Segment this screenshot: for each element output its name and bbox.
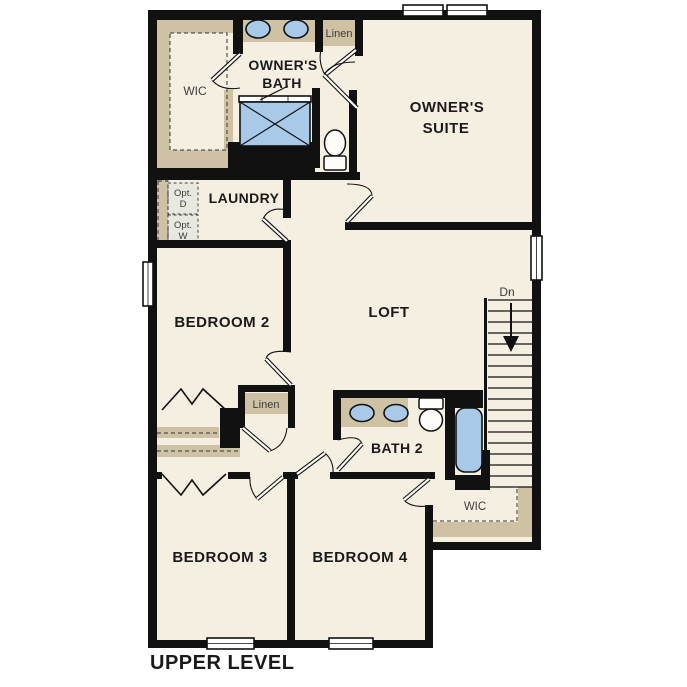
wall-linen-hall-left (238, 385, 245, 428)
floor-plan-page: OWNER'S SUITE OWNER'S BATH WIC LAUNDRY B… (0, 0, 687, 687)
linen-upper-label: Linen (326, 28, 353, 40)
wall-stairs-bottom (455, 475, 490, 490)
wall-linen-right (355, 16, 363, 56)
wall-laundry-right (283, 168, 291, 218)
wall-bath2-top (333, 390, 455, 398)
owners-bath-label-line1: OWNER'S (248, 57, 317, 73)
floor-plan: OWNER'S SUITE OWNER'S BATH WIC LAUNDRY B… (0, 0, 687, 687)
wall-toilet-nook-bottom (312, 172, 360, 180)
laundry-side-shelf (157, 180, 168, 245)
stairs-dn-label: Dn (499, 285, 514, 299)
wall-wic-lower-bottom (425, 542, 541, 550)
wall-hall-stub1 (148, 472, 162, 479)
bath2-label: BATH 2 (371, 440, 423, 456)
bath2-toilet-tank (419, 398, 443, 409)
stairs-railing (484, 298, 487, 450)
wic-upper-label: WIC (183, 84, 207, 98)
wic-lower-label: WIC (464, 501, 486, 513)
wic-upper-shelf-left (157, 20, 170, 170)
wic-upper-shelf-bottom (157, 150, 233, 170)
shower-glass (239, 96, 311, 102)
wic-lower-shelf-bottom (433, 522, 533, 537)
bath2-toilet-bowl (420, 409, 443, 431)
owners-suite-label-line1: OWNER'S (410, 99, 485, 116)
wall-bedroom3-4-divider (287, 478, 295, 640)
wall-hall-stub2 (228, 472, 250, 479)
loft-label: LOFT (368, 304, 409, 321)
wall-exterior-bottom (148, 640, 433, 648)
bath2-sink-right (384, 405, 408, 422)
wall-tub-divider (445, 390, 455, 480)
wall-owners-suite-bottom (345, 222, 541, 230)
bedroom2-label: BEDROOM 2 (174, 314, 269, 331)
bathtub (456, 408, 482, 472)
bedroom4-label: BEDROOM 4 (312, 549, 408, 566)
opt-dryer-label-line1: Opt. (174, 188, 192, 199)
laundry-label: LAUNDRY (209, 190, 280, 206)
wic-lower-shelf-right (518, 487, 533, 523)
owners-bath-sink-left (246, 20, 270, 38)
owners-bath-sink-right (284, 20, 308, 38)
wall-laundry-bottom (148, 240, 291, 248)
owners-bath-toilet-bowl (325, 130, 346, 156)
opt-washer-label-line1: Opt. (174, 220, 192, 231)
wall-linen-left (315, 16, 323, 52)
opt-washer-label-line2: W (179, 231, 188, 242)
opt-dryer-label-line2: D (180, 199, 187, 210)
owners-bath-toilet-tank (324, 156, 346, 170)
wall-exterior-left (148, 10, 157, 648)
linen-hall-label: Linen (253, 399, 280, 411)
owners-suite-label-line2: SUITE (423, 120, 470, 137)
owners-bath-label-line2: BATH (262, 75, 301, 91)
wall-linen-hall-top (238, 385, 295, 392)
wall-bedroom2-right (283, 248, 291, 352)
bedroom3-label: BEDROOM 3 (172, 549, 267, 566)
wall-wic-bath-divider (233, 16, 243, 54)
plan-title: UPPER LEVEL (150, 652, 294, 674)
wall-hall-south (330, 472, 430, 479)
wall-toilet-nook-left (312, 88, 320, 168)
wall-closet-mass (220, 408, 240, 448)
wall-hall-stub3 (283, 472, 298, 479)
wall-bedroom4-right (425, 505, 433, 648)
wall-linen-hall-right (288, 392, 295, 428)
wall-wic-door-stub (425, 472, 435, 479)
bath2-sink-left (350, 405, 374, 422)
